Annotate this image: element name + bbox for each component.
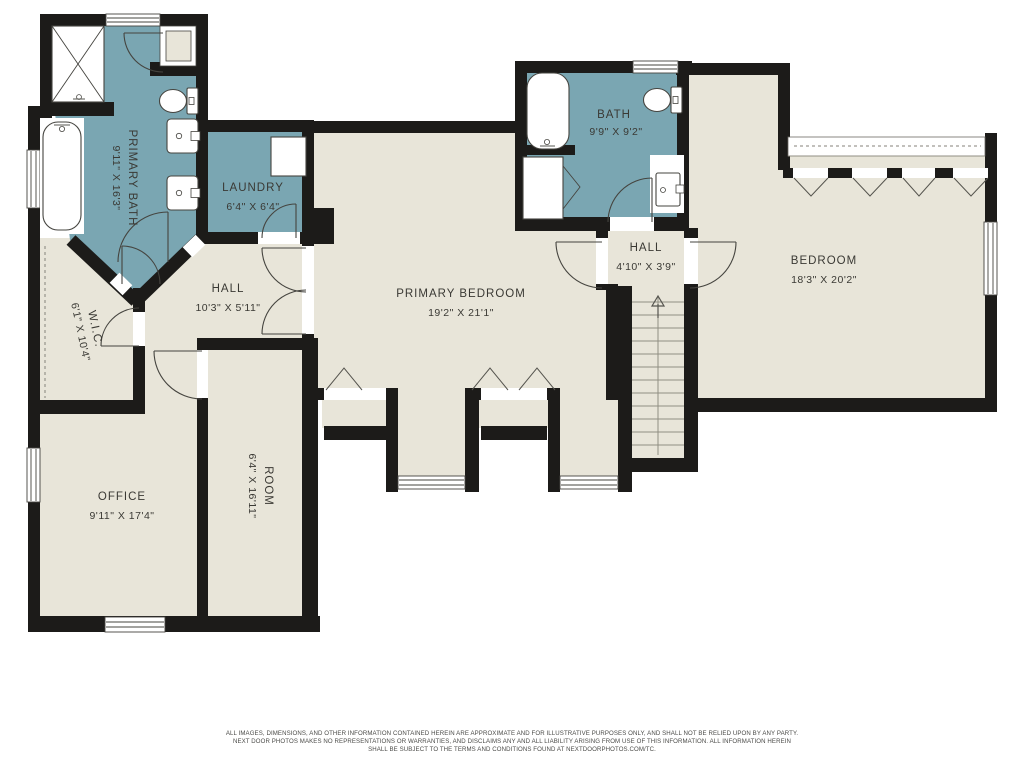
disclaimer-line-3: SHALL BE SUBJECT TO THE TERMS AND CONDIT… — [368, 746, 656, 753]
shower-stall — [52, 26, 104, 102]
window — [27, 448, 40, 502]
svg-text:10'3" X 5'11": 10'3" X 5'11" — [195, 302, 260, 314]
svg-text:BEDROOM: BEDROOM — [791, 255, 857, 267]
svg-text:HALL: HALL — [630, 242, 663, 254]
linen-closet — [160, 26, 196, 66]
svg-text:PRIMARY BATH: PRIMARY BATH — [126, 130, 138, 227]
svg-text:OFFICE: OFFICE — [98, 491, 146, 503]
disclaimer-line-1: ALL IMAGES, DIMENSIONS, AND OTHER INFORM… — [226, 730, 798, 737]
toilet-2 — [644, 87, 683, 113]
vanity-sink — [650, 155, 684, 213]
disclaimer: ALL IMAGES, DIMENSIONS, AND OTHER INFORM… — [226, 730, 798, 753]
vanity-sink — [167, 119, 200, 153]
window — [106, 14, 160, 26]
vanity-sink — [167, 176, 200, 210]
bathtub-primary — [40, 118, 84, 234]
svg-text:9'11" X 17'4": 9'11" X 17'4" — [89, 510, 154, 522]
svg-text:9'11" X 16'3": 9'11" X 16'3" — [110, 145, 122, 210]
svg-text:6'4" X 6'4": 6'4" X 6'4" — [226, 201, 279, 213]
room-area-bedroom — [688, 73, 987, 404]
washer-dryer — [271, 137, 306, 176]
svg-text:6'4" X 16'11": 6'4" X 16'11" — [246, 453, 258, 518]
window — [398, 476, 465, 489]
disclaimer-line-2: NEXT DOOR PHOTOS MAKES NO REPRESENTATION… — [233, 738, 791, 745]
window — [560, 476, 618, 489]
window — [27, 150, 40, 208]
chimney-block — [304, 208, 334, 244]
svg-text:4'10" X 3'9": 4'10" X 3'9" — [616, 261, 676, 273]
svg-text:ROOM: ROOM — [262, 466, 274, 506]
svg-text:BATH: BATH — [597, 109, 631, 121]
svg-text:LAUNDRY: LAUNDRY — [222, 182, 284, 194]
window — [633, 61, 678, 73]
svg-text:HALL: HALL — [212, 283, 245, 295]
window — [105, 617, 165, 632]
svg-text:9'9" X 9'2": 9'9" X 9'2" — [589, 126, 642, 138]
bathtub-2 — [527, 73, 569, 149]
svg-text:19'2" X 21'1": 19'2" X 21'1" — [428, 307, 494, 319]
toilet-primary — [160, 88, 199, 114]
window — [984, 222, 997, 295]
floor-plan: PRIMARY BATH 9'11" X 16'3" LAUNDRY 6'4" … — [0, 0, 1024, 768]
room-area-hall-landing — [602, 228, 686, 292]
svg-text:PRIMARY BEDROOM: PRIMARY BEDROOM — [396, 288, 526, 300]
svg-text:18'3" X 20'2": 18'3" X 20'2" — [791, 274, 857, 286]
